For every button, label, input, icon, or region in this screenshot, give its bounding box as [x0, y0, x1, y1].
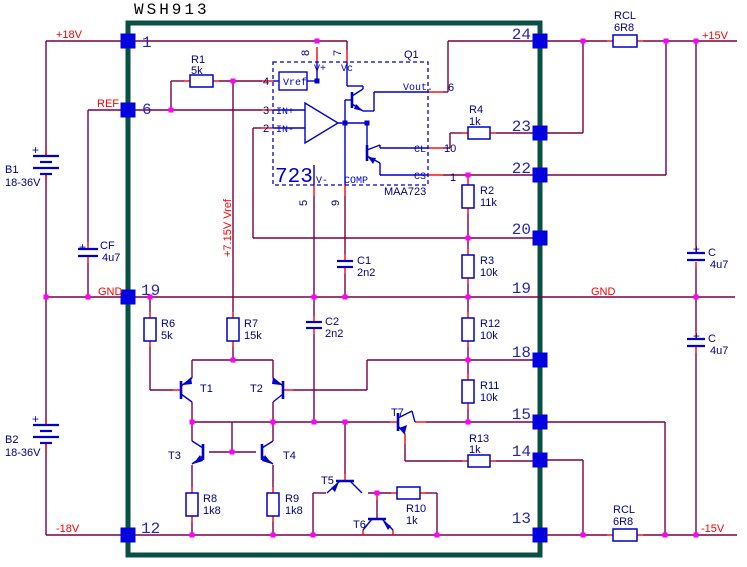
- label-vref: Vref: [283, 77, 307, 89]
- rail-label-minus15v: -15V: [701, 523, 725, 535]
- label-1k: 1k: [469, 444, 481, 456]
- label-9: 9: [330, 200, 342, 206]
- label-15k: 15k: [244, 330, 262, 342]
- pin-square-22: [533, 168, 548, 183]
- junction-dot: [694, 533, 699, 538]
- junction-dot: [169, 108, 174, 113]
- label-b2: B2: [5, 434, 18, 446]
- label-c1: C1: [357, 255, 371, 267]
- junction-dot: [312, 420, 317, 425]
- label-t4: T4: [283, 450, 296, 462]
- pin-number-14: 14: [512, 443, 531, 461]
- pin-number-18: 18: [512, 344, 531, 362]
- resistor-R7: [227, 318, 239, 341]
- label-r8: R8: [203, 493, 217, 505]
- junction-dot: [375, 491, 380, 496]
- label-t6: T6: [353, 519, 366, 531]
- ic-internal-wire: [181, 394, 192, 402]
- rail-label-plus18v: +18V: [56, 29, 83, 41]
- net-label-vref: +7.15V Vref: [222, 198, 234, 257]
- junction-dot: [315, 39, 320, 44]
- resistor-R10: [397, 487, 420, 499]
- label-5k: 5k: [191, 65, 203, 77]
- rail-label-gnd-left: GND: [98, 286, 123, 298]
- transistor-arrow: [354, 104, 363, 111]
- resistor-R3: [462, 255, 474, 278]
- label-6r8: 6R8: [614, 22, 634, 34]
- label-v+: V+: [314, 64, 326, 75]
- label-c: C: [708, 333, 716, 345]
- junction-dot: [694, 39, 699, 44]
- label-8: 8: [300, 50, 312, 56]
- label-10k: 10k: [480, 267, 498, 279]
- label-cl: CL: [414, 145, 426, 156]
- ic-internal-wire: [192, 441, 203, 448]
- transistor-arrow: [383, 521, 391, 530]
- label-r9: R9: [285, 493, 299, 505]
- label-1k8: 1k8: [285, 505, 303, 517]
- ic-junction-dot: [315, 79, 320, 84]
- label-1k: 1k: [469, 116, 481, 128]
- junction-dot: [190, 533, 195, 538]
- ic-internal-wire: [350, 481, 362, 493]
- pin-number-15: 15: [512, 406, 531, 424]
- label-4: 4: [263, 76, 269, 88]
- label-r7: R7: [244, 318, 258, 330]
- label-11k: 11k: [480, 197, 497, 209]
- pin-number-19: 19: [512, 280, 531, 298]
- label-4u7: 4u7: [710, 259, 728, 271]
- ic-junction-dot: [365, 121, 370, 126]
- label-vc: Vc: [341, 64, 353, 75]
- schematic-page: WSH913 161912242322201918151413+18VREFGN…: [0, 0, 747, 567]
- junction-dot: [311, 533, 316, 538]
- label-2n2: 2n2: [357, 267, 375, 279]
- junction-dot: [86, 295, 91, 300]
- junction-dot: [230, 450, 235, 455]
- label-cf: CF: [100, 240, 115, 252]
- pin-number-19: 19: [141, 282, 160, 300]
- ic-part-label: MAA723: [384, 186, 426, 198]
- junction-dot: [694, 295, 699, 300]
- rail-label-ref: REF: [97, 98, 119, 110]
- rail-label-gnd-right: GND: [591, 286, 616, 298]
- junction-dot: [312, 295, 317, 300]
- pin-square-18: [533, 353, 548, 368]
- label-r10: R10: [406, 503, 426, 515]
- junction-dot: [466, 295, 471, 300]
- junction-dot: [435, 533, 440, 538]
- pin-number-6: 6: [142, 101, 152, 119]
- junction-dot: [581, 533, 586, 538]
- transistor-arrow: [183, 377, 192, 385]
- resistor-RCL-bottom: [613, 529, 637, 541]
- pin-number-24: 24: [512, 26, 531, 44]
- pin-square-20: [533, 231, 548, 246]
- ic-junction-dot: [343, 121, 348, 126]
- label-r12: R12: [480, 318, 500, 330]
- label-t3: T3: [168, 450, 181, 462]
- hybrid-outline: [128, 23, 540, 555]
- label-10k: 10k: [480, 330, 498, 342]
- label-1: 1: [450, 172, 456, 184]
- label-1k: 1k: [406, 515, 418, 527]
- label-vout: Vout.: [403, 83, 433, 94]
- label-6r8: 6R8: [613, 516, 633, 528]
- junction-dot: [271, 533, 276, 538]
- label-+: +: [32, 412, 39, 426]
- label-18-36v: 18-36V: [5, 177, 41, 189]
- ic-internal-wire: [352, 89, 363, 96]
- junction-dot: [664, 39, 669, 44]
- pin-square-12: [121, 528, 136, 543]
- junction-dot: [231, 79, 236, 84]
- label-v-: V-: [316, 176, 328, 187]
- label-t2: T2: [250, 383, 263, 395]
- pin-number-20: 20: [512, 221, 531, 239]
- pin-square-19: [121, 290, 136, 305]
- label-in-: IN-: [276, 125, 294, 136]
- opamp-triangle: [305, 103, 338, 143]
- label-10: 10: [444, 143, 456, 155]
- label-1k8: 1k8: [203, 505, 221, 517]
- junction-dot: [231, 358, 236, 363]
- label-rcl: RCL: [614, 10, 636, 22]
- pin-square-6: [121, 103, 136, 118]
- resistor-R8: [186, 493, 198, 516]
- label-r6: R6: [161, 318, 175, 330]
- ic-internal-wire: [262, 441, 273, 448]
- junction-dot: [466, 236, 471, 241]
- junction-dot: [343, 295, 348, 300]
- junction-dot: [466, 420, 471, 425]
- label-b1: B1: [5, 164, 18, 176]
- pin-square-14: [533, 453, 548, 468]
- resistor-R11: [462, 380, 474, 403]
- ic-internal-wire: [412, 411, 415, 422]
- ic-q1-label: Q1: [404, 49, 419, 61]
- label-in+: IN+: [276, 107, 294, 118]
- rail-label-minus18v: -18V: [56, 523, 80, 535]
- pin-square-23: [533, 126, 548, 141]
- junction-dot: [466, 358, 471, 363]
- label-cs: CS: [414, 172, 426, 183]
- junction-dot: [663, 533, 668, 538]
- pin-square-24: [533, 34, 548, 49]
- label-c2: C2: [325, 316, 339, 328]
- label-+: +: [79, 240, 86, 254]
- resistor-RCL-top: [613, 35, 637, 47]
- resistor-R6: [144, 318, 156, 341]
- label-rcl: RCL: [613, 504, 635, 516]
- pin-square-1: [121, 34, 136, 49]
- pin-number-13: 13: [512, 510, 531, 528]
- ic-internal-wire: [273, 394, 283, 402]
- label-6: 6: [448, 82, 454, 94]
- label-t1: T1: [200, 383, 213, 395]
- label-+: +: [693, 242, 700, 256]
- pin-number-12: 12: [141, 520, 160, 538]
- resistor-R12: [462, 318, 474, 341]
- label-r11: R11: [480, 380, 499, 392]
- label-r2: R2: [480, 185, 494, 197]
- label-t7: T7: [391, 407, 404, 419]
- pin-square-13: [533, 528, 548, 543]
- label-5: 5: [298, 200, 310, 206]
- junction-dot: [581, 39, 586, 44]
- junction-dot: [190, 420, 195, 425]
- rail-label-plus15v: +15V: [702, 30, 729, 42]
- resistor-R4: [468, 127, 490, 139]
- label-r4: R4: [469, 104, 483, 116]
- label-5k: 5k: [161, 330, 173, 342]
- label-4u7: 4u7: [710, 345, 728, 357]
- junction-dot: [343, 420, 348, 425]
- circuit-schematic-canvas: 161912242322201918151413+18VREFGND-18V+1…: [0, 0, 747, 567]
- label-3: 3: [263, 105, 269, 117]
- label-+: +: [693, 329, 700, 343]
- label-comp: COMP: [344, 176, 368, 187]
- transistor-arrow: [272, 377, 281, 385]
- label-7: 7: [332, 50, 344, 56]
- label-4u7: 4u7: [102, 252, 120, 264]
- resistor-R2: [462, 185, 474, 208]
- pin-square-15: [533, 415, 548, 430]
- resistor-R9: [267, 493, 279, 516]
- label-10k: 10k: [480, 392, 498, 404]
- label-+: +: [32, 143, 39, 157]
- label-r3: R3: [480, 255, 494, 267]
- pin-number-23: 23: [512, 118, 531, 136]
- label-18-36v: 18-36V: [5, 447, 41, 459]
- ic-723-label: 723: [275, 166, 313, 189]
- ic-internal-wire: [367, 145, 380, 150]
- label-c: C: [708, 247, 716, 259]
- junction-dot: [44, 295, 49, 300]
- resistor-R13: [468, 455, 490, 467]
- label-2n2: 2n2: [325, 328, 343, 340]
- label-t5: T5: [321, 475, 334, 487]
- pin-number-1: 1: [142, 34, 152, 52]
- junction-dot: [271, 420, 276, 425]
- junction-dot: [466, 173, 471, 178]
- label-2: 2: [263, 123, 269, 135]
- pin-number-22: 22: [512, 160, 531, 178]
